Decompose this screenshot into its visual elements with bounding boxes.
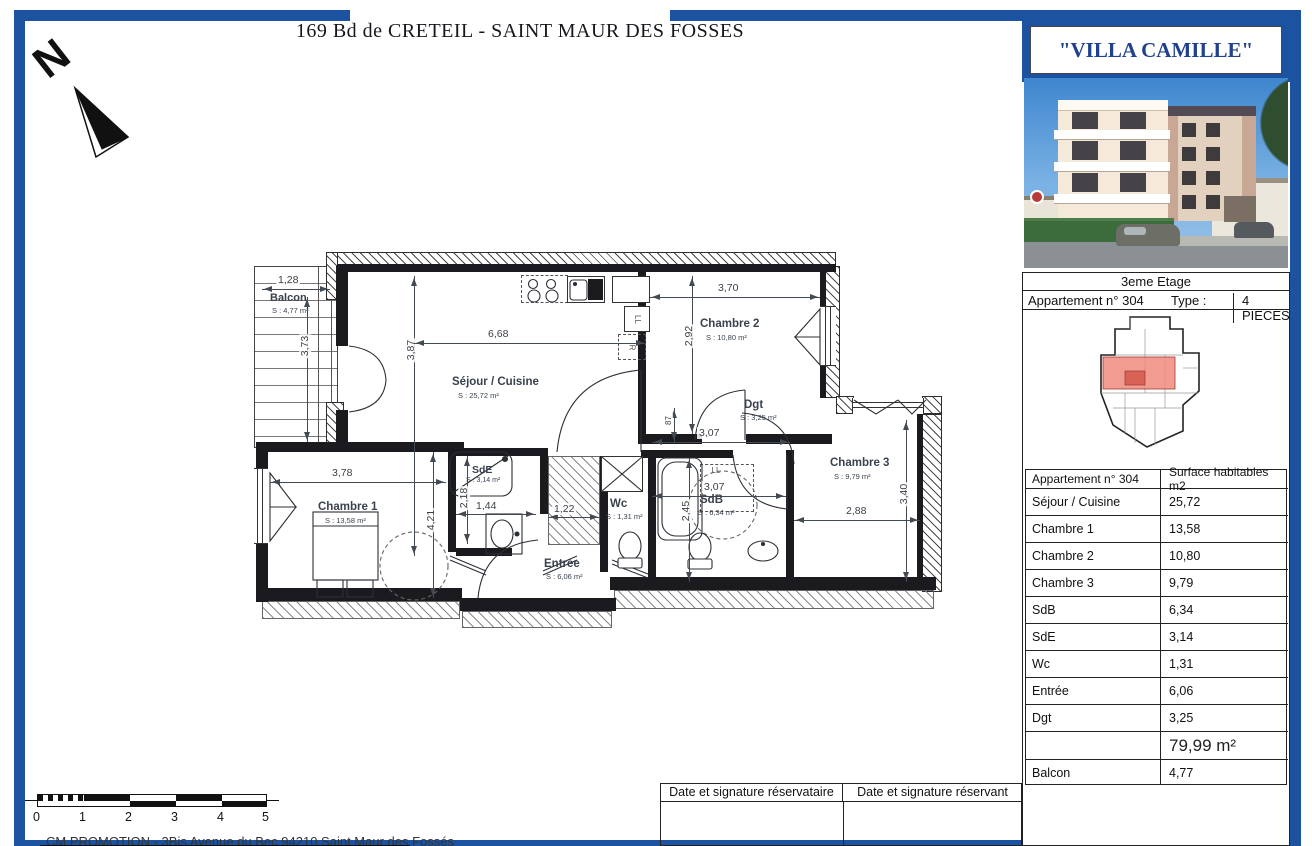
table-row: Wc 1,31 xyxy=(1026,651,1288,678)
room-cell: Chambre 1 xyxy=(1026,516,1161,542)
room-label-wc: Wc xyxy=(610,498,627,510)
dim-line xyxy=(548,517,600,518)
table-row: SdE 3,14 xyxy=(1026,624,1288,651)
dim-ch3-w: 2,88 xyxy=(844,505,868,517)
dim-balcon-h: 3,73 xyxy=(299,334,311,358)
scalebar-tick: 5 xyxy=(262,810,269,824)
table-row: Chambre 2 10,80 xyxy=(1026,543,1288,570)
table-row: Chambre 1 13,58 xyxy=(1026,516,1288,543)
signature-table: Date et signature réservataire Date et s… xyxy=(660,783,1022,846)
room-cell: Balcon xyxy=(1026,760,1161,785)
surface-table: Appartement n° 304 Surface habitables m2… xyxy=(1025,469,1287,785)
scalebar-tick: 0 xyxy=(33,810,40,824)
room-cell: Entrée xyxy=(1026,678,1161,704)
apartment-row: Appartement n° 304 Type : 4 PIECES xyxy=(1023,291,1289,310)
table-row: Chambre 3 9,79 xyxy=(1026,570,1288,597)
empty-cell xyxy=(1026,732,1161,759)
room-label-sde: SdE xyxy=(472,464,492,476)
room-cell: SdE xyxy=(1026,624,1161,650)
dim-line xyxy=(692,276,693,434)
dim-line xyxy=(650,297,820,298)
dim-line xyxy=(414,276,415,556)
dim-line xyxy=(456,514,536,515)
room-label-balcon: Balcon xyxy=(270,292,307,304)
floor-label: 3eme Etage xyxy=(1023,273,1289,291)
room-cell: SdB xyxy=(1026,597,1161,623)
type-value: 4 PIECES xyxy=(1233,293,1290,323)
room-surface-dgt: S : 3,25 m² xyxy=(740,413,777,422)
surface-cell: 6,34 xyxy=(1161,597,1288,623)
room-surface-sde: S : 3,14 m² xyxy=(466,477,500,484)
surface-cell: 6,06 xyxy=(1161,678,1288,704)
dim-ch2-w: 3,70 xyxy=(716,282,740,294)
table-header: Appartement n° 304 Surface habitables m2 xyxy=(1026,470,1288,489)
room-label-chambre2: Chambre 2 xyxy=(700,318,759,330)
dim-ch1-h: 4,21 xyxy=(425,508,437,532)
room-label-chambre3: Chambre 3 xyxy=(830,457,889,469)
dim-ch1-w: 3,78 xyxy=(330,467,354,479)
table-row: SdB 6,34 xyxy=(1026,597,1288,624)
dim-sdb-h: 2,45 xyxy=(680,499,692,523)
scalebar-tick: 1 xyxy=(79,810,86,824)
room-cell: Wc xyxy=(1026,651,1161,677)
apartment-number: Appartement n° 304 xyxy=(1028,293,1144,308)
room-surface-wc: S : 1,31 m² xyxy=(606,512,643,521)
dim-wc-w: 1,22 xyxy=(552,503,576,515)
dim-sejour-w: 6,68 xyxy=(486,328,510,340)
room-surface-chambre3: S : 9,79 m² xyxy=(834,472,871,481)
dim-ch3-h: 3,40 xyxy=(898,482,910,506)
room-surface-sejour: S : 25,72 m² xyxy=(458,391,499,400)
room-cell: Séjour / Cuisine xyxy=(1026,489,1161,515)
room-cell: Chambre 3 xyxy=(1026,570,1161,596)
surface-cell: 4,77 xyxy=(1161,760,1288,785)
signature-header-right: Date et signature réservant xyxy=(843,784,1022,802)
room-surface-entree: S : 6,06 m² xyxy=(546,572,583,581)
plan-sheet: 169 Bd de CRETEIL - SAINT MAUR DES FOSSE… xyxy=(0,0,1312,846)
room-surface-balcon: S : 4,77 m² xyxy=(272,306,309,315)
dim-balcon-w: 1,28 xyxy=(276,274,300,286)
room-cell: Dgt xyxy=(1026,705,1161,731)
table-header-cell: Appartement n° 304 xyxy=(1026,470,1161,488)
dim-line xyxy=(414,343,646,344)
room-surface-chambre2: S : 10,80 m² xyxy=(706,333,747,342)
dim-line xyxy=(262,289,330,290)
table-row: Séjour / Cuisine 25,72 xyxy=(1026,489,1288,516)
signature-header-left: Date et signature réservataire xyxy=(661,784,843,802)
total-surface: 79,99 m² xyxy=(1161,732,1288,759)
scalebar-tick: 4 xyxy=(217,810,224,824)
surface-cell: 25,72 xyxy=(1161,489,1288,515)
type-label: Type : xyxy=(1171,293,1206,308)
scalebar-tick: 3 xyxy=(171,810,178,824)
dim-ch2-h: 2,92 xyxy=(683,324,695,348)
surface-cell: 1,31 xyxy=(1161,651,1288,677)
sidebar-body: 3eme Etage Appartement n° 304 Type : 4 P… xyxy=(1022,272,1290,846)
table-total-row: 79,99 m² xyxy=(1026,732,1288,760)
surface-cell: 13,58 xyxy=(1161,516,1288,542)
table-header-cell: Surface habitables m2 xyxy=(1161,470,1288,488)
room-label-sdb: SdB xyxy=(700,494,723,506)
dim-sde-h: 2,18 xyxy=(458,486,470,510)
dim-sde-w: 1,44 xyxy=(474,500,498,512)
dim-dgt-w: 3,07 xyxy=(697,427,721,439)
keyplan xyxy=(1085,313,1225,465)
dim-line xyxy=(270,482,446,483)
room-surface-chambre1: S : 13,58 m² xyxy=(325,516,366,525)
scalebar xyxy=(37,794,267,807)
residence-title: "VILLA CAMILLE" xyxy=(1030,26,1282,74)
dim-sdb-w: 3,07 xyxy=(702,481,726,493)
dim-line xyxy=(794,520,920,521)
scalebar-tick: 2 xyxy=(125,810,132,824)
building-photo xyxy=(1024,78,1288,268)
dim-line xyxy=(307,297,308,442)
residence-title-text: "VILLA CAMILLE" xyxy=(1059,38,1253,62)
table-row: Entrée 6,06 xyxy=(1026,678,1288,705)
room-label-sejour: Séjour / Cuisine xyxy=(452,376,539,388)
surface-cell: 3,14 xyxy=(1161,624,1288,650)
surface-cell: 10,80 xyxy=(1161,543,1288,569)
surface-cell: 9,79 xyxy=(1161,570,1288,596)
signature-divider xyxy=(843,802,844,846)
table-row: Dgt 3,25 xyxy=(1026,705,1288,732)
dim-line xyxy=(674,408,675,442)
room-label-entree: Entrée xyxy=(544,558,580,570)
surface-cell: 3,25 xyxy=(1161,705,1288,731)
room-cell: Chambre 2 xyxy=(1026,543,1161,569)
room-label-chambre1: Chambre 1 xyxy=(318,501,377,513)
room-label-dgt: Dgt xyxy=(744,399,763,411)
table-row-balcony: Balcon 4,77 xyxy=(1026,760,1288,785)
room-surface-sdb: S : 6,34 m² xyxy=(698,508,735,517)
dim-dgt-door: 87 xyxy=(664,414,673,427)
